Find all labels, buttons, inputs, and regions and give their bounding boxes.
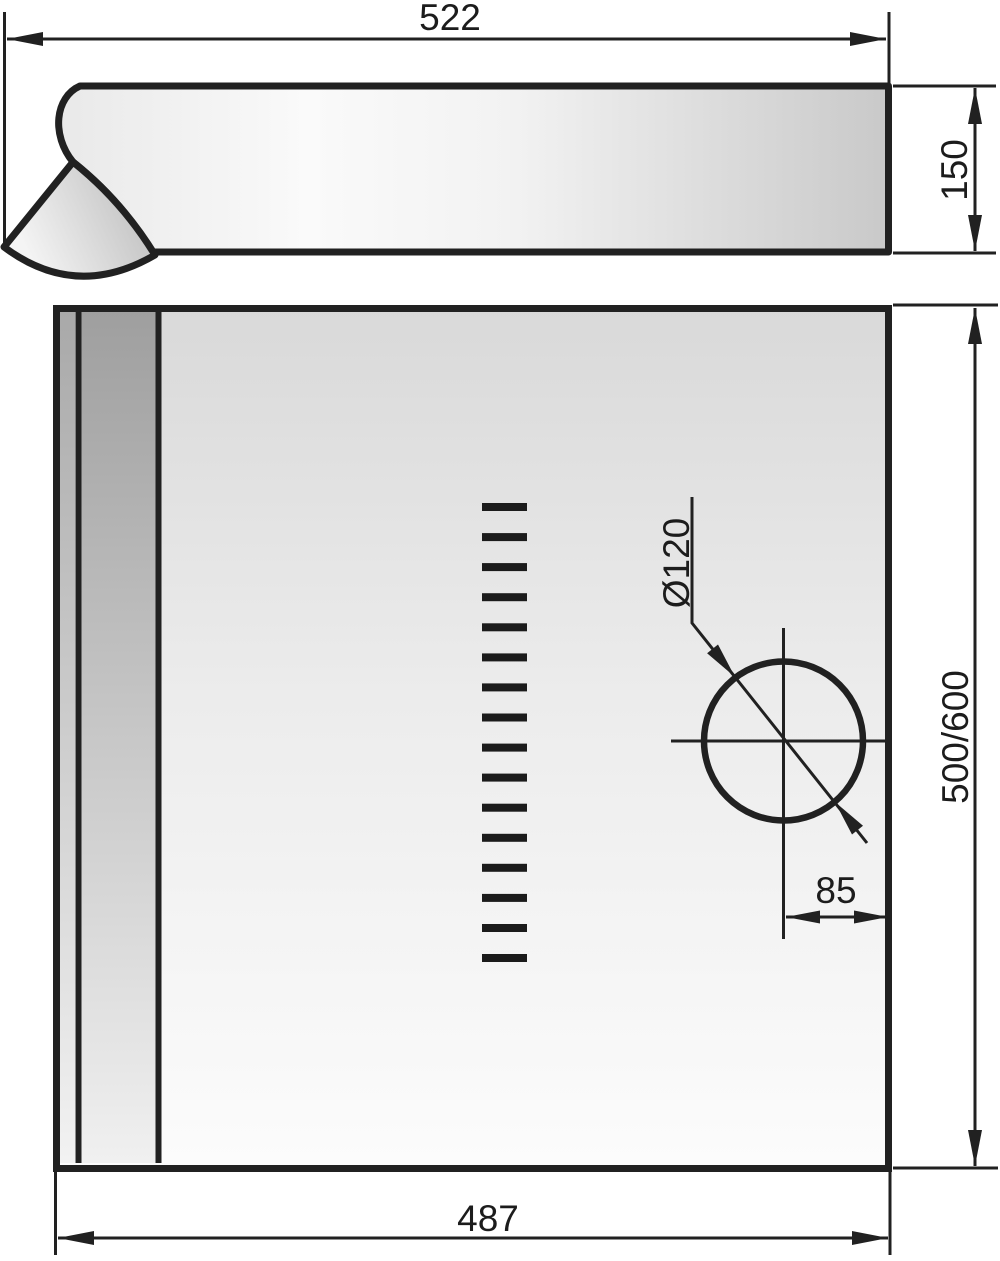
body-depth-label: 150 <box>934 139 975 201</box>
side-strip-narrow <box>60 312 75 1163</box>
vent-slot <box>482 683 527 691</box>
vent-slot <box>482 894 527 902</box>
vent-slot <box>482 834 527 842</box>
vent-slot <box>482 744 527 752</box>
duct-offset-label: 85 <box>815 870 856 911</box>
bottom-width-label: 487 <box>457 1198 519 1239</box>
arrowhead-top <box>968 88 982 124</box>
vent-slot <box>482 774 527 782</box>
arrowhead-left <box>58 1231 94 1245</box>
dimension-body-depth: 150 <box>893 86 996 253</box>
vent-slot <box>482 623 527 631</box>
front-view: Ø120 <box>57 309 889 1169</box>
vent-slot <box>482 653 527 661</box>
overall-width-label: 522 <box>419 0 481 38</box>
technical-drawing: Ø120 522 150 500/600 85 <box>0 0 1000 1256</box>
body-height-label: 500/600 <box>935 670 976 804</box>
vent-slot <box>482 924 527 932</box>
hood-body-side <box>59 86 889 252</box>
vent-slot <box>482 593 527 601</box>
arrowhead-left <box>7 32 43 46</box>
vent-slot <box>482 503 527 511</box>
arrowhead-top <box>968 308 982 344</box>
dimension-bottom-width: 487 <box>56 1172 891 1255</box>
arrowhead-right <box>850 32 886 46</box>
vent-slot <box>482 563 527 571</box>
arrowhead-bottom <box>968 1130 982 1166</box>
vent-slot <box>482 714 527 722</box>
vent-slot <box>482 804 527 812</box>
drawing-canvas: Ø120 522 150 500/600 85 <box>0 0 1000 1256</box>
side-view <box>4 86 889 276</box>
vent-slot <box>482 864 527 872</box>
arrowhead-right <box>852 1231 888 1245</box>
side-strip-wide <box>82 312 156 1163</box>
arrowhead-bottom <box>968 215 982 251</box>
vent-slot <box>482 954 527 962</box>
front-panel-fill <box>57 309 889 1169</box>
duct-diameter-label: Ø120 <box>656 518 697 609</box>
dimension-body-height: 500/600 <box>893 305 998 1168</box>
vent-slot <box>482 533 527 541</box>
